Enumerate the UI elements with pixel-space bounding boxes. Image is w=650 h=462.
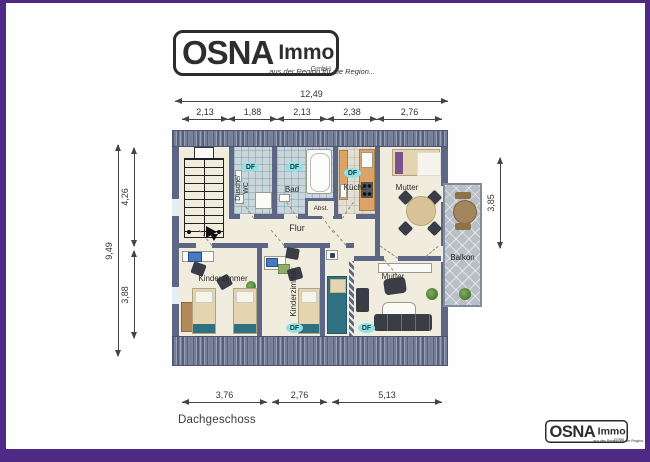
bed-footboard [234,324,256,333]
dim-line [118,145,119,356]
room-label-hall: Flur [280,222,314,234]
balcony: Balkon [443,183,482,307]
wall-child-mid-east [320,248,325,336]
brand-slogan: ...aus der Region für die Region... [590,439,646,444]
room-storage: Abst. [305,198,337,216]
bed-pillow [395,152,403,174]
dim-top-seg-1: 2,13 [182,108,228,120]
dim-value: 2,76 [401,108,419,117]
dim-line [272,402,327,403]
wall-hall-south [179,243,196,248]
wall-mother-top-south [398,256,441,261]
wall-left [172,147,179,336]
stairs [184,158,224,238]
brand-slogan: ...aus der Region für die Region... [263,67,375,76]
dim-left-upper: 4,26 [126,148,140,246]
dim-line [182,119,228,120]
wall-sloped-hatched [349,261,354,336]
bed [392,149,440,176]
bed [233,288,257,334]
dim-line [182,402,267,403]
bed-pillow [195,291,213,303]
room-label-shower-wc: Dusche/ WC [234,160,252,216]
room-label-storage: Abst. [314,205,329,212]
room-label-kitchen: Küche [336,182,374,193]
bed [327,276,347,334]
dim-top-seg-3: 2,13 [277,108,327,120]
shower-tray [255,192,272,209]
dim-top-seg-4: 2,38 [327,108,377,120]
dim-top-seg-5: 2,76 [377,108,442,120]
bed [192,288,216,334]
dim-value: 3,85 [486,194,496,212]
wall-shower-bath [272,147,277,219]
window-left-1 [172,199,179,216]
plant [459,288,471,300]
dim-value: 3,76 [216,391,234,400]
room-label-child-mid: Kinderzimmer [287,256,299,328]
room-label-child-left: Kinderzimmer [188,273,258,284]
dining-table [406,196,436,226]
laptop [266,258,278,267]
wall-kitchen-mother [375,147,380,261]
bathtub [306,149,332,194]
brand-logo-bottom: OSNA Immo GmbH ...aus der Region für die… [545,420,648,446]
dim-left-total: 9,49 [110,145,124,356]
basin-bowl [330,253,335,258]
bed-footboard [193,324,215,333]
frame-top [0,0,650,3]
dim-value: 9,49 [104,242,114,260]
bath-sink [279,194,290,202]
floor-title: Dachgeschoss [178,414,256,426]
room-label-mother-bottom: Mutter [368,271,418,282]
bed-blanket [417,152,441,176]
dim-top-total: 12,49 [175,90,448,102]
balcony-chair [455,223,471,230]
wall-hall-south [346,243,354,248]
frame-right [645,0,650,462]
dim-line [327,119,377,120]
skylight-marker: DF [286,162,303,172]
dim-bottom-seg-3: 5,13 [332,391,442,403]
dim-value: 12,49 [300,90,323,99]
window-left-2 [172,287,179,304]
dim-value: 1,88 [244,108,262,117]
brand-name: OSNA [182,36,273,70]
roof-band-bottom [172,336,448,366]
bed-pillow [236,291,254,303]
dim-bottom-seg-2: 2,76 [272,391,327,403]
stair-direction-arrow [206,226,217,238]
dim-line [134,148,135,246]
balcony-table [453,200,477,224]
room-label-mother-top: Mutter [384,182,430,193]
wall-hall-north [356,214,380,219]
kitchen-sink [361,152,373,168]
room-label-bath: Bad [277,184,307,195]
wall-mother-top-south [354,256,384,261]
wall-hall-north [254,214,284,219]
dim-line [500,158,501,248]
dim-line [228,119,277,120]
brand-logo-top: OSNA Immo GmbH ...aus der Region für die… [173,30,378,82]
roof-band-top [172,130,448,147]
dim-value: 2,13 [293,108,311,117]
dim-line [277,119,327,120]
brand-product: Immo [278,40,334,66]
tv-cabinet [356,288,369,312]
balcony-chair [455,192,471,199]
washbasin [326,250,338,260]
frame-left [0,0,6,462]
dim-line [134,251,135,338]
brand-name: OSNA [550,423,596,440]
dim-right-balcony: 3,85 [492,158,506,248]
floorplan-page: OSNA Immo GmbH ...aus der Region für die… [0,0,650,462]
bed-pillow [301,291,317,303]
dim-value: 3,88 [120,286,130,304]
frame-bottom [0,449,650,462]
dim-line [377,119,442,120]
stair-post-dot [187,230,191,234]
dim-value: 5,13 [378,391,396,400]
dim-value: 2,13 [196,108,214,117]
dim-bottom-seg-1: 3,76 [182,391,267,403]
skylight-marker: DF [344,168,361,178]
floorplan: Abst. [172,130,448,366]
bed-pillow [330,279,346,293]
dim-value: 2,38 [343,108,361,117]
wall-child-left-mid [257,248,262,336]
brand-product: Immo [598,425,626,438]
dim-line [332,402,442,403]
dim-value: 2,76 [291,391,309,400]
dim-value: 4,26 [120,188,130,206]
skylight-marker: DF [358,323,375,333]
dim-top-seg-2: 1,88 [228,108,277,120]
dim-line [175,101,448,102]
bathtub-basin [310,153,330,192]
dim-left-lower: 3,88 [126,251,140,338]
plant [426,288,438,300]
room-label-balcony: Balkon [445,252,480,263]
sofa [374,314,432,331]
